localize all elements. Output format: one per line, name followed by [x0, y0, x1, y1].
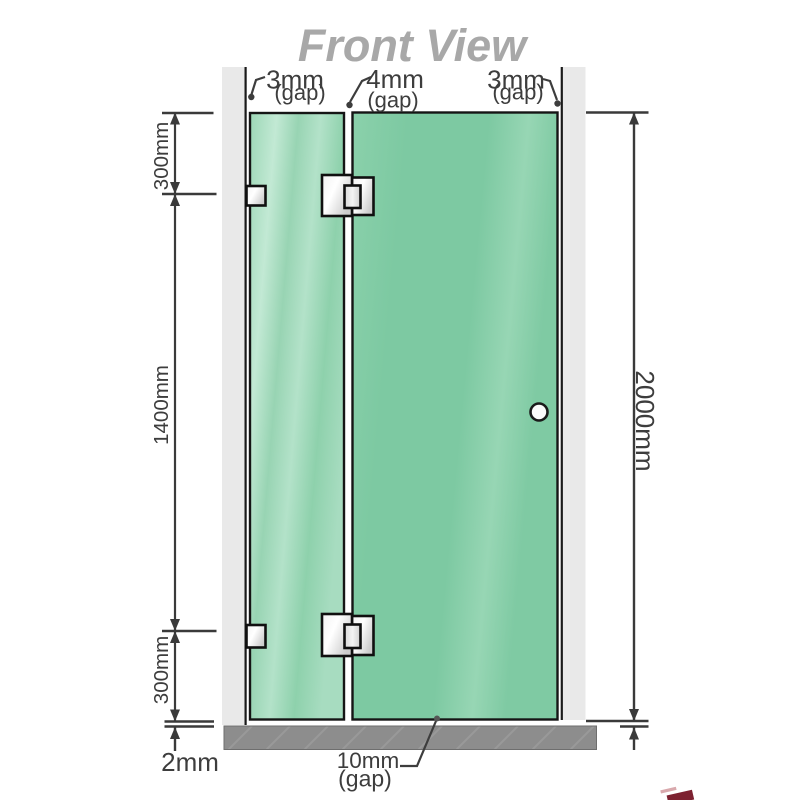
svg-text:300mm: 300mm	[150, 122, 173, 190]
svg-text:(gap): (gap)	[338, 766, 392, 792]
svg-text:1400mm: 1400mm	[150, 365, 173, 445]
svg-text:2000mm: 2000mm	[630, 370, 660, 471]
svg-text:(gap): (gap)	[492, 80, 543, 105]
svg-text:(gap): (gap)	[274, 80, 325, 105]
svg-text:2mm: 2mm	[161, 747, 219, 777]
svg-text:300mm: 300mm	[150, 636, 173, 704]
svg-text:(gap): (gap)	[367, 88, 418, 113]
